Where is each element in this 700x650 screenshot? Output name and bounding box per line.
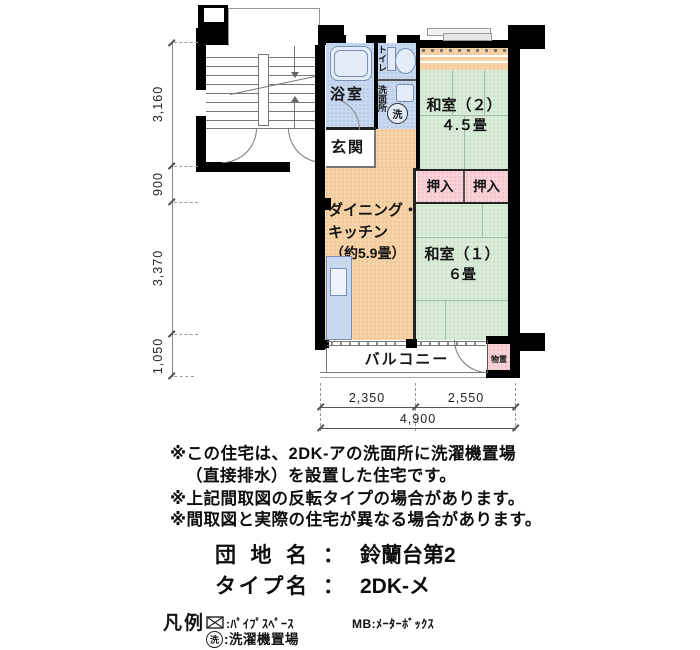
- label-washitsu1-size: ６畳: [416, 266, 508, 282]
- estate-name-value: 鈴蘭台第2: [360, 545, 456, 566]
- label-dk-1: ダイニング・: [328, 203, 418, 218]
- label-closet-left: 押入: [417, 171, 463, 202]
- label-toilet: トイレ: [377, 45, 386, 72]
- washer-legend-mark: 洗: [210, 633, 219, 646]
- label-closet-right: 押入: [465, 171, 508, 202]
- entrance-hall-divider: [374, 130, 376, 168]
- sill-hatch: [331, 341, 403, 345]
- label-washroom: 洗面所: [377, 85, 386, 112]
- estate-name-separator: ：: [323, 545, 344, 566]
- label-washitsu2: 和室（２）: [420, 96, 508, 114]
- label-bath: 浴室: [330, 87, 364, 102]
- note-line-1: ※この住宅は、2DK-アの洗面所に洗濯機置場: [170, 446, 516, 463]
- dim-ext-line: [174, 202, 198, 203]
- window-rail: [443, 33, 492, 41]
- tatami-line: [445, 300, 446, 340]
- wall-top-wet: [322, 35, 420, 43]
- stair-arrow-line: [294, 46, 295, 72]
- note-line-3: ※上記間取図の反転タイプの場合があります。: [170, 491, 525, 508]
- dim-left-3: 3,370: [152, 238, 168, 298]
- wall-notch: [204, 8, 224, 22]
- type-name-value: 2DK-メ: [360, 576, 430, 597]
- stair-upper-flight-outline: [228, 8, 320, 46]
- label-washitsu2-size: ４.５畳: [420, 117, 508, 133]
- wall-storage-top: [486, 336, 510, 344]
- washer-legend-icon: 洗: [206, 631, 223, 648]
- dim-ext-line: [174, 334, 198, 335]
- dim-line: [320, 407, 516, 408]
- strip-line: [420, 61, 508, 63]
- tatami-line: [416, 237, 508, 238]
- estate-name-row: 団地名 ： 鈴蘭台第2: [215, 545, 456, 566]
- pipe-space-icon: [206, 616, 224, 629]
- dim-left-1: 3,160: [152, 74, 168, 134]
- dim-ext-line: [174, 42, 198, 43]
- dim-ext-line: [174, 376, 194, 377]
- label-storage: 物置: [488, 354, 510, 366]
- arrow-down-icon: [291, 72, 299, 78]
- washbasin: [396, 84, 414, 102]
- legend-mb: MB:ﾒｰﾀｰﾎﾞｯｸｽ: [352, 618, 434, 630]
- arrow-up-icon: [291, 96, 299, 102]
- dim-left-2: 900: [152, 154, 168, 214]
- stair-arrow-line: [294, 102, 295, 128]
- wall-segment: [406, 339, 417, 348]
- wall-storage-bottom: [486, 370, 520, 378]
- wall-left: [315, 45, 325, 350]
- wall-segment: [206, 162, 290, 172]
- hallway: [376, 129, 416, 169]
- strip-line: [420, 55, 508, 57]
- label-washitsu1: 和室（１）: [416, 245, 508, 263]
- note-line-4: ※間取図と実際の住宅が異なる場合があります。: [170, 512, 542, 529]
- legend-title: 凡例: [163, 614, 205, 633]
- wall-top-washitsu2: [420, 40, 510, 48]
- note-line-2: （直接排水）を設置した住宅です。: [186, 468, 456, 485]
- legend-washer: :洗濯機置場: [224, 633, 299, 647]
- bathtub-inner: [334, 50, 368, 77]
- dim-ext-line: [174, 166, 198, 167]
- washer-place-symbol: 洗: [387, 103, 408, 124]
- floor-plan-page: 浴室 トイレ 洗 洗面所 玄関 和室（２） ４.５畳 押入 押入 ダイニング・ …: [0, 0, 700, 650]
- label-dk-2: キッチン: [328, 225, 388, 240]
- kitchen-sink: [330, 268, 347, 296]
- dim-line: [320, 428, 516, 429]
- door-arc: [222, 128, 257, 163]
- toilet-window: [386, 35, 397, 43]
- wall-toilet-washroom: [378, 79, 416, 81]
- stair-handrail: [258, 54, 269, 126]
- dim-bottom-1: 2,350: [337, 392, 397, 405]
- dim-bottom-total: 4,900: [388, 413, 448, 426]
- type-name-separator: ：: [323, 576, 344, 597]
- dim-left-4: 1,050: [152, 326, 168, 386]
- wall-right: [508, 40, 520, 340]
- legend-pipe-space: :ﾊﾟｲﾌﾟｽﾍﾟｰｽ: [226, 618, 294, 630]
- dim-bottom-2: 2,550: [436, 392, 496, 405]
- label-entrance: 玄関: [331, 140, 365, 155]
- stair-window: [196, 90, 206, 116]
- strip-hatch: [422, 49, 506, 52]
- toilet-bowl: [395, 48, 416, 74]
- tatami-line: [416, 300, 508, 301]
- bath-window: [346, 35, 366, 43]
- estate-name-label: 団地名: [215, 545, 307, 566]
- type-name-label: タイプ名: [215, 576, 307, 597]
- dim-chain-left: [172, 43, 173, 377]
- window-sill: [327, 345, 406, 346]
- tatami-line: [482, 204, 483, 237]
- type-name-row: タイプ名 ： 2DK-メ: [215, 576, 430, 597]
- washer-place-mark: 洗: [393, 106, 403, 121]
